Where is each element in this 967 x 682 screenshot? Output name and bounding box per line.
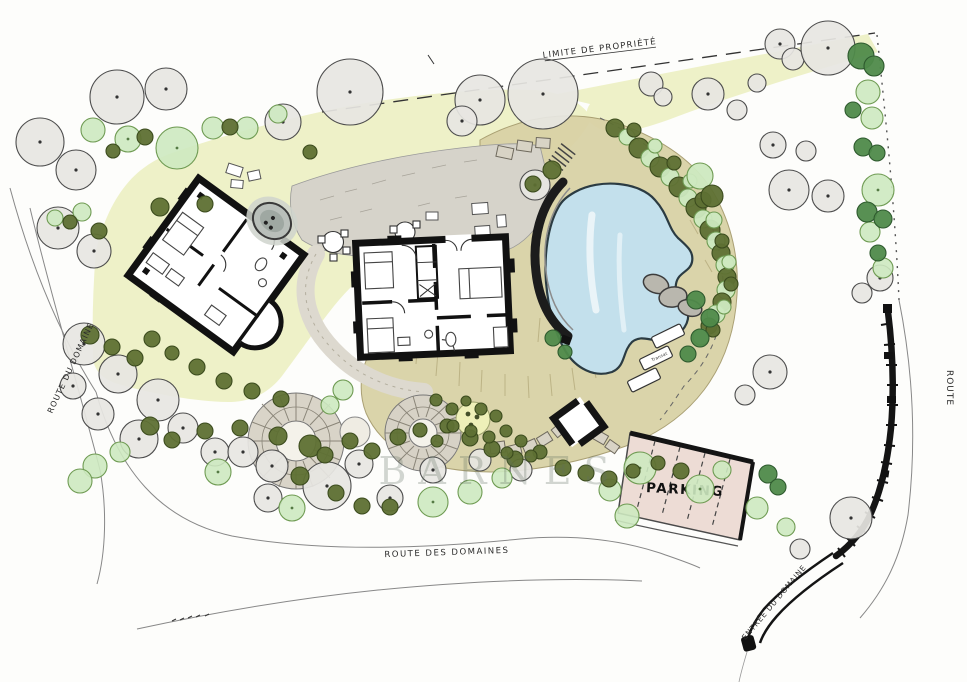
tree-trunk-dot <box>706 92 709 95</box>
bush-icon <box>328 485 344 501</box>
bush-icon <box>382 499 398 515</box>
bush-icon <box>197 423 213 439</box>
bush-icon <box>232 420 248 436</box>
tree-icon <box>770 479 786 495</box>
tree-icon <box>269 105 287 123</box>
tree-trunk-dot <box>787 188 790 191</box>
tree-icon <box>727 100 747 120</box>
bush-icon <box>303 145 317 159</box>
bush-icon <box>715 234 729 248</box>
bush-icon <box>141 417 159 435</box>
tree-icon <box>796 141 816 161</box>
tree-icon <box>856 80 880 104</box>
tree-icon <box>654 88 672 106</box>
bush-icon <box>222 119 238 135</box>
tree-icon <box>701 309 719 327</box>
tree-icon <box>558 345 572 359</box>
tree-trunk-dot <box>116 372 119 375</box>
tree-icon <box>687 291 705 309</box>
tree-trunk-dot <box>348 90 351 93</box>
bush-icon <box>667 156 681 170</box>
tree-icon <box>648 139 662 153</box>
tree-trunk-dot <box>56 226 59 229</box>
bush-icon <box>91 223 107 239</box>
tree-icon <box>47 210 63 226</box>
tree-icon <box>706 212 722 228</box>
bush-icon <box>515 435 527 447</box>
tree-icon <box>852 283 872 303</box>
tree-trunk-dot <box>96 412 99 415</box>
bush-icon <box>543 161 561 179</box>
bush-icon <box>197 196 213 212</box>
tree-trunk-dot <box>127 138 130 141</box>
watermark-text: BARNES <box>379 449 622 493</box>
tree-icon <box>748 74 766 92</box>
bush-icon <box>465 425 477 437</box>
tree-trunk-dot <box>849 516 852 519</box>
tree-trunk-dot <box>217 471 220 474</box>
bush-icon <box>413 423 427 437</box>
bush-icon <box>390 429 406 445</box>
bush-icon <box>651 456 665 470</box>
bush-icon <box>269 427 287 445</box>
tree-icon <box>691 329 709 347</box>
tree-trunk-dot <box>541 92 544 95</box>
bush-icon <box>317 447 333 463</box>
tree-icon <box>333 380 353 400</box>
tree-icon <box>722 255 736 269</box>
tree-icon <box>870 245 886 261</box>
tree-icon <box>746 497 768 519</box>
bush-icon <box>63 215 77 229</box>
site-plan-canvas: Transat PARKING <box>0 0 967 682</box>
tree-trunk-dot <box>699 488 702 491</box>
bush-icon <box>701 185 723 207</box>
bush-icon <box>104 339 120 355</box>
bush-icon <box>164 432 180 448</box>
bush-icon <box>673 463 689 479</box>
bush-icon <box>342 433 358 449</box>
bush-icon <box>291 467 309 485</box>
tree-icon <box>680 346 696 362</box>
tree-trunk-dot <box>137 437 140 440</box>
bush-icon <box>626 464 640 478</box>
bush-icon <box>627 123 641 137</box>
tree-trunk-dot <box>357 462 360 465</box>
tree-icon <box>68 469 92 493</box>
tree-icon <box>845 102 861 118</box>
tree-trunk-dot <box>115 95 118 98</box>
tree-trunk-dot <box>164 87 167 90</box>
bush-icon <box>500 425 512 437</box>
bush-icon <box>106 144 120 158</box>
tree-icon <box>735 385 755 405</box>
tree-trunk-dot <box>778 42 781 45</box>
bush-icon <box>490 410 502 422</box>
bush-icon <box>431 435 443 447</box>
bush-icon <box>447 420 459 432</box>
bush-icon <box>216 373 232 389</box>
tree-icon <box>777 518 795 536</box>
tree-icon <box>110 442 130 462</box>
tree-trunk-dot <box>877 189 880 192</box>
tree-trunk-dot <box>432 501 435 504</box>
tree-icon <box>869 145 885 161</box>
tree-icon <box>321 396 339 414</box>
bush-icon <box>144 331 160 347</box>
tree-trunk-dot <box>266 496 269 499</box>
tree-trunk-dot <box>478 98 481 101</box>
tree-trunk-dot <box>768 370 771 373</box>
main-villa <box>349 230 518 363</box>
bush-icon <box>127 350 143 366</box>
tree-icon <box>615 504 639 528</box>
bush-icon <box>273 391 289 407</box>
tree-trunk-dot <box>92 249 95 252</box>
tree-icon <box>81 118 105 142</box>
bush-icon <box>151 198 169 216</box>
tree-trunk-dot <box>826 194 829 197</box>
bush-icon <box>525 176 541 192</box>
tree-trunk-dot <box>826 46 829 49</box>
tree-trunk-dot <box>74 168 77 171</box>
tree-trunk-dot <box>213 450 216 453</box>
tree-trunk-dot <box>771 143 774 146</box>
bush-icon <box>446 403 458 415</box>
tree-icon <box>236 117 258 139</box>
tree-trunk-dot <box>325 484 328 487</box>
tree-trunk-dot <box>270 464 273 467</box>
bush-icon <box>354 498 370 514</box>
tree-icon <box>713 461 731 479</box>
tree-trunk-dot <box>291 507 294 510</box>
tree-trunk-dot <box>71 384 74 387</box>
tree-trunk-dot <box>181 426 184 429</box>
bush-icon <box>430 394 442 406</box>
tree-icon <box>861 107 883 129</box>
tree-trunk-dot <box>460 119 463 122</box>
bush-icon <box>165 346 179 360</box>
tree-icon <box>202 117 224 139</box>
bush-icon <box>189 359 205 375</box>
tree-trunk-dot <box>38 140 41 143</box>
bush-icon <box>483 431 495 443</box>
tree-trunk-dot <box>176 147 179 150</box>
tree-icon <box>545 330 561 346</box>
bush-icon <box>475 403 487 415</box>
bush-icon <box>244 383 260 399</box>
tree-trunk-dot <box>241 450 244 453</box>
tree-icon <box>874 210 892 228</box>
site-plan: Transat PARKING <box>0 0 967 682</box>
tree-icon <box>790 539 810 559</box>
route-right-label: ROUTE <box>944 370 954 406</box>
tree-icon <box>717 300 731 314</box>
tree-trunk-dot <box>156 398 159 401</box>
bush-icon <box>724 277 738 291</box>
bush-icon <box>137 129 153 145</box>
tree-icon <box>864 56 884 76</box>
bush-icon <box>461 396 471 406</box>
